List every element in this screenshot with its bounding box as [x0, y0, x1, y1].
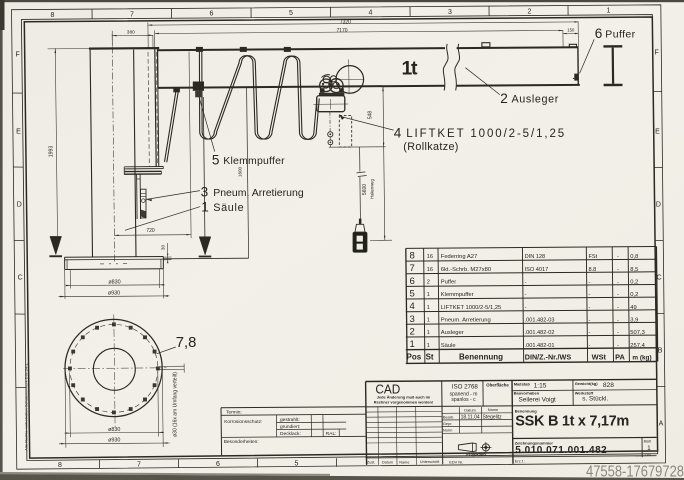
svg-text:(Rollkatze): (Rollkatze): [403, 141, 458, 153]
svg-text:Alle Rechte vorbehalten Schutz: Alle Rechte vorbehalten Schutzvermerk DI…: [24, 363, 29, 451]
svg-text:1 Bl.: 1 Bl.: [644, 453, 651, 457]
svg-text:Benennung: Benennung: [459, 352, 503, 361]
svg-text:Datum: Datum: [464, 407, 475, 412]
svg-text:1: 1: [410, 339, 415, 350]
svg-text:Maßstab: Maßstab: [514, 382, 531, 387]
svg-text:5: 5: [212, 152, 220, 167]
svg-text:-: -: [589, 280, 591, 286]
svg-text:7170: 7170: [336, 28, 347, 34]
svg-text:Name: Name: [488, 407, 498, 412]
svg-text:PA: PA: [615, 352, 625, 361]
svg-text:Säule: Säule: [213, 202, 244, 214]
svg-text:Benennung: Benennung: [515, 408, 538, 413]
svg-text:.001.482-03: .001.482-03: [525, 317, 555, 323]
svg-text:Termin:: Termin:: [226, 410, 242, 416]
svg-text:ø830: ø830: [108, 279, 120, 285]
svg-text:Pneum. Arretierung: Pneum. Arretierung: [213, 187, 304, 199]
svg-text:-: -: [589, 317, 591, 323]
svg-text:Ausleger: Ausleger: [512, 94, 559, 106]
svg-text:-: -: [589, 343, 591, 349]
svg-text:SSK B 1t x 7,17m: SSK B 1t x 7,17m: [515, 414, 629, 430]
svg-text:8: 8: [51, 12, 55, 19]
svg-text:1: 1: [607, 8, 611, 15]
svg-text:-: -: [589, 292, 591, 298]
svg-text:7: 7: [130, 11, 134, 18]
svg-text:-: -: [525, 280, 527, 286]
svg-text:4: 4: [394, 126, 402, 141]
svg-text:Rechner vorgenommen werden!: Rechner vorgenommen werden!: [374, 400, 433, 405]
svg-text:828: 828: [603, 382, 614, 389]
svg-text:Decklack:: Decklack:: [280, 431, 301, 437]
svg-text:FSt: FSt: [589, 254, 598, 260]
svg-text:257,4: 257,4: [630, 343, 645, 349]
svg-text:3: 3: [410, 314, 415, 325]
svg-text:7320: 7320: [340, 19, 351, 25]
svg-text:6kt.-Schrb. M27x80: 6kt.-Schrb. M27x80: [441, 267, 491, 273]
svg-text:1: 1: [201, 199, 209, 214]
svg-text:D: D: [17, 202, 22, 209]
svg-text:1: 1: [427, 317, 430, 323]
svg-text:5: 5: [410, 289, 415, 300]
svg-text:-: -: [617, 305, 619, 311]
svg-text:-: -: [617, 330, 619, 336]
svg-text:ø830: ø830: [108, 427, 120, 433]
svg-text:1: 1: [427, 305, 430, 311]
svg-text:ISO 4017: ISO 4017: [525, 267, 549, 273]
svg-text:Bauvorhaben: Bauvorhaben: [514, 391, 540, 396]
svg-text:8,5: 8,5: [630, 267, 638, 273]
svg-text:4: 4: [410, 301, 415, 312]
svg-text:Korrosionsschutz:: Korrosionsschutz:: [224, 419, 262, 425]
svg-text:Hakenweg: Hakenweg: [369, 178, 374, 198]
svg-text:Projektion: Projektion: [466, 452, 486, 457]
svg-text:ISO 2768: ISO 2768: [452, 383, 479, 390]
svg-text:Federring A27: Federring A27: [441, 254, 477, 260]
svg-text:E: E: [655, 129, 660, 136]
svg-text:Oberfläche: Oberfläche: [486, 382, 509, 387]
svg-text:7: 7: [410, 263, 415, 274]
svg-text:Ausleger: Ausleger: [441, 330, 464, 336]
svg-text:5.010.071.001.482: 5.010.071.001.482: [515, 445, 607, 456]
svg-text:1: 1: [647, 445, 651, 452]
svg-text:49: 49: [630, 305, 636, 311]
svg-text:0,8: 0,8: [630, 254, 638, 260]
svg-text:Stegelitz: Stegelitz: [483, 414, 503, 420]
svg-text:gestrahlt:: gestrahlt:: [280, 417, 300, 423]
svg-text:Blatt: Blatt: [644, 439, 651, 443]
svg-text:B: B: [658, 348, 663, 355]
svg-text:.001.482-01: .001.482-01: [525, 343, 555, 349]
svg-text:ø930: ø930: [108, 291, 120, 297]
svg-text:F: F: [15, 52, 19, 59]
svg-text:A: A: [659, 421, 664, 428]
svg-text:380: 380: [127, 29, 135, 35]
svg-text:Pos: Pos: [407, 352, 422, 361]
svg-text:Puffer: Puffer: [605, 28, 635, 40]
svg-text:Norm: Norm: [443, 428, 453, 433]
svg-text:Pneum. Arretierung: Pneum. Arretierung: [441, 317, 491, 323]
svg-text:1: 1: [427, 343, 430, 349]
svg-text:6: 6: [410, 276, 415, 287]
svg-text:ø930: ø930: [108, 438, 120, 444]
svg-text:8.8: 8.8: [589, 267, 597, 273]
svg-text:548: 548: [368, 111, 374, 120]
svg-text:Zust.: Zust.: [367, 461, 375, 465]
svg-text:-: -: [617, 292, 619, 298]
svg-text:Unterschrift: Unterschrift: [420, 460, 440, 464]
svg-text:7: 7: [137, 462, 141, 469]
svg-text:DIN 128: DIN 128: [525, 254, 546, 260]
svg-text:6: 6: [216, 461, 220, 468]
svg-text:3,9: 3,9: [630, 317, 638, 323]
svg-text:s. Stückl.: s. Stückl.: [582, 396, 608, 403]
svg-text:8: 8: [58, 462, 62, 469]
svg-text:-: -: [617, 317, 619, 323]
svg-text:1: 1: [427, 330, 430, 336]
svg-text:.001.482-02: .001.482-02: [525, 330, 555, 336]
svg-text:1993: 1993: [49, 146, 55, 158]
svg-text:4: 4: [369, 10, 373, 17]
svg-text:2: 2: [500, 91, 508, 106]
svg-text:Werkstoff: Werkstoff: [575, 390, 594, 395]
svg-text:Seilerei Voigt: Seilerei Voigt: [519, 397, 557, 404]
svg-text:3: 3: [201, 184, 209, 199]
svg-text:-: -: [525, 305, 527, 311]
svg-text:m (kg): m (kg): [632, 354, 651, 361]
svg-text:F: F: [654, 50, 658, 57]
svg-text:1t: 1t: [402, 57, 418, 79]
svg-text:47558-17679728: 47558-17679728: [586, 463, 684, 480]
svg-text:-: -: [617, 267, 619, 273]
svg-text:-: -: [617, 343, 619, 349]
svg-text:2: 2: [528, 8, 532, 15]
svg-text:3: 3: [448, 9, 452, 16]
svg-text:8: 8: [410, 251, 415, 262]
svg-text:16: 16: [427, 254, 433, 260]
svg-text:30: 30: [161, 245, 166, 251]
svg-text:-: -: [589, 330, 591, 336]
svg-text:E: E: [16, 129, 21, 136]
svg-text:spanlos - c: spanlos - c: [451, 397, 476, 403]
svg-text:16: 16: [427, 267, 433, 273]
svg-text:RAL:: RAL:: [326, 431, 337, 437]
svg-text:18.11.04: 18.11.04: [461, 415, 480, 421]
svg-text:6: 6: [210, 11, 214, 18]
svg-text:Gewicht(kg): Gewicht(kg): [575, 381, 599, 386]
svg-text:1: 1: [427, 292, 430, 298]
svg-text:720: 720: [146, 228, 155, 234]
svg-text:507,3: 507,3: [630, 330, 645, 336]
svg-text:St: St: [426, 352, 434, 361]
svg-text:LIFTKET 1000/2-5/1,25: LIFTKET 1000/2-5/1,25: [406, 128, 566, 140]
svg-text:0,2: 0,2: [630, 280, 638, 286]
svg-text:Datum: Datum: [382, 460, 393, 464]
svg-text:EDV Nr.: EDV Nr.: [449, 460, 463, 465]
svg-text:2: 2: [427, 280, 430, 286]
svg-text:Name: Name: [399, 460, 409, 464]
svg-text:-: -: [525, 292, 527, 298]
svg-text:1600: 1600: [238, 166, 243, 177]
svg-text:5600: 5600: [362, 184, 368, 195]
svg-text:LIFTKET 1000/2-5/1,25: LIFTKET 1000/2-5/1,25: [441, 305, 501, 311]
svg-text:D: D: [656, 202, 661, 209]
svg-text:-: -: [589, 305, 591, 311]
svg-text:Klemmpuffer: Klemmpuffer: [223, 155, 285, 167]
svg-text:7,8: 7,8: [176, 335, 197, 351]
svg-text:2: 2: [410, 327, 415, 338]
svg-text:Säule: Säule: [441, 343, 456, 349]
svg-text:Puffer: Puffer: [441, 280, 456, 286]
svg-text:Bearb.: Bearb.: [443, 414, 454, 419]
svg-text:5: 5: [295, 460, 299, 467]
svg-text:-: -: [617, 280, 619, 286]
svg-text:-: -: [617, 254, 619, 260]
svg-text:6: 6: [595, 26, 603, 41]
svg-text:1:15: 1:15: [534, 382, 547, 389]
svg-text:150: 150: [567, 28, 575, 33]
svg-text:5: 5: [289, 10, 293, 17]
svg-text:Klemmpuffer: Klemmpuffer: [441, 292, 474, 298]
svg-text:grundiert:: grundiert:: [280, 424, 300, 430]
svg-text:Besonderheiten:: Besonderheiten:: [224, 439, 259, 445]
svg-text:ø30 (16x am Umfang verteilt): ø30 (16x am Umfang verteilt): [173, 372, 179, 437]
svg-text:0,2: 0,2: [630, 292, 638, 298]
svg-text:DIN/Z.-Nr./WS: DIN/Z.-Nr./WS: [525, 353, 572, 362]
svg-text:C: C: [18, 275, 23, 282]
svg-text:WSt: WSt: [592, 352, 607, 361]
svg-text:Erz.f.:: Erz.f.:: [515, 459, 525, 464]
svg-text:Gepr.: Gepr.: [443, 421, 453, 426]
